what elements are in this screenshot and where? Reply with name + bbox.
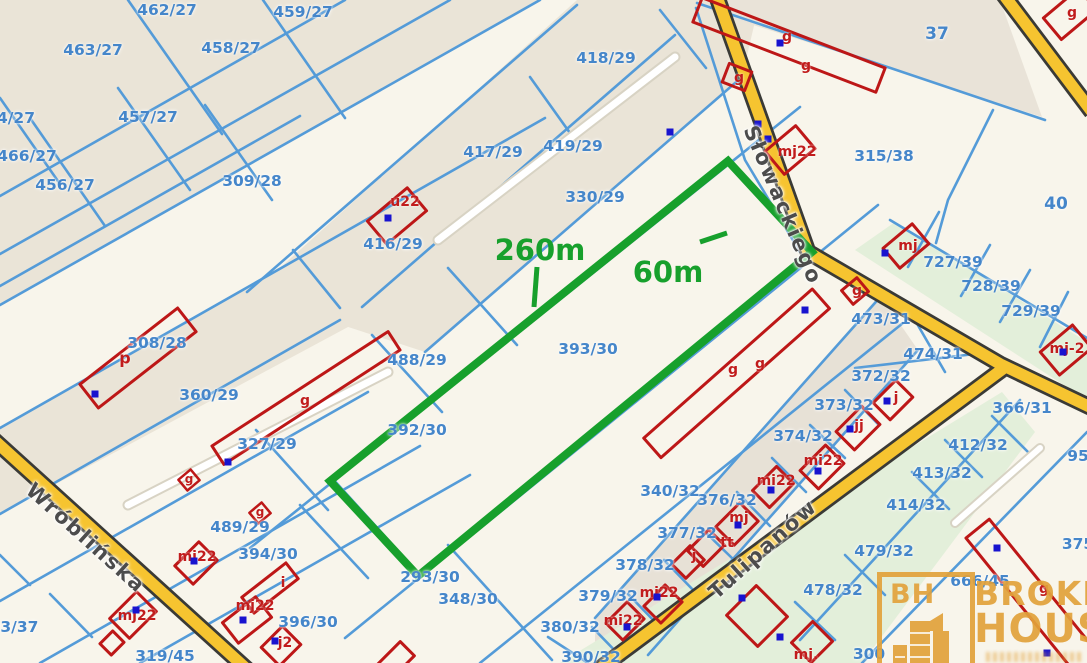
logo-bh-box: BH [877, 572, 975, 663]
dimension-length-label: 260m [495, 233, 586, 267]
parcel-fill-areas [0, 0, 1087, 663]
map-graphics [0, 0, 1087, 663]
logo-fine-print-blurred [986, 652, 1081, 662]
logo-broker-text: BROKER [974, 578, 1087, 609]
logo-initials: BH [890, 579, 935, 610]
logo-building-icon [885, 607, 963, 663]
logo-house-text: HOUSE [974, 610, 1087, 648]
cadastral-map-canvas[interactable]: 462/27459/27463/27458/274/27466/27456/27… [0, 0, 1087, 663]
dimension-width-label: 60m [633, 255, 704, 289]
broker-house-logo: BH BROKER HOUSE [874, 568, 1087, 663]
